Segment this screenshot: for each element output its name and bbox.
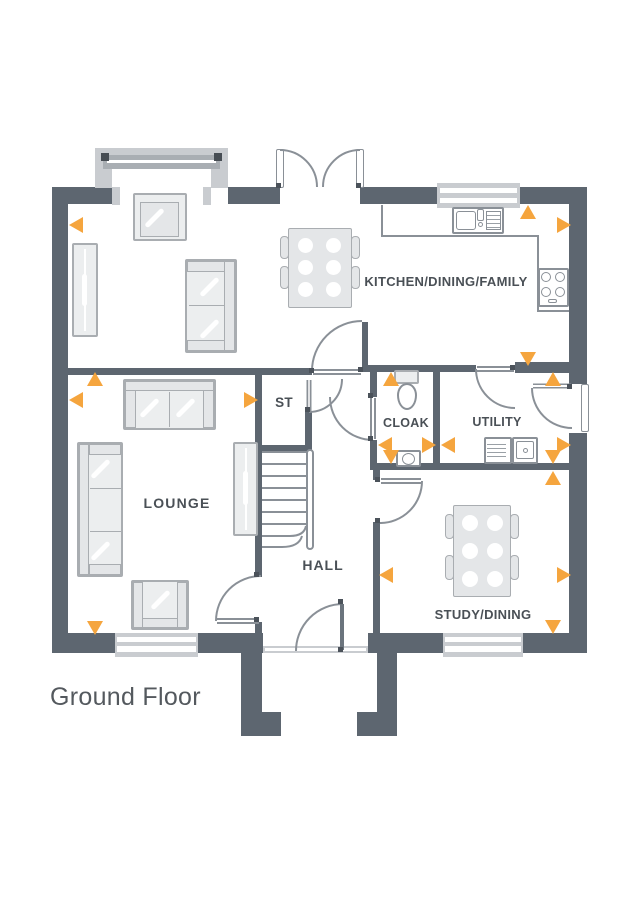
room-label-utility: UTILITY <box>467 415 527 429</box>
back-door-arc <box>532 388 572 428</box>
french-door-arc-right <box>323 150 360 187</box>
dimension-marker-down <box>545 450 561 464</box>
room-label-cloak: CLOAK <box>376 416 436 430</box>
lounge-door-arc <box>216 576 261 621</box>
kitchen-counter <box>382 205 569 311</box>
stair-treads <box>262 452 307 524</box>
linework-layer <box>0 0 636 900</box>
dimension-marker-right <box>422 437 436 453</box>
dimension-marker-down <box>545 620 561 634</box>
room-label-kitchen: KITCHEN/DINING/FAMILY <box>326 274 566 289</box>
dimension-marker-left <box>69 217 83 233</box>
cloak-door-arc <box>330 397 373 440</box>
room-label-hall: HALL <box>283 557 363 573</box>
study-door-arc <box>380 481 422 523</box>
dimension-marker-left <box>441 437 455 453</box>
room-label-study: STUDY/DINING <box>403 607 563 622</box>
dimension-marker-up <box>545 471 561 485</box>
front-door-arc <box>296 604 343 651</box>
dimension-marker-down <box>87 621 103 635</box>
dimension-marker-up <box>87 372 103 386</box>
dimension-marker-down <box>520 352 536 366</box>
store-door-arc <box>309 379 342 412</box>
stair-bullnose <box>262 526 306 536</box>
floor-title: Ground Floor <box>50 683 201 712</box>
dimension-marker-up <box>520 205 536 219</box>
stair-bullnose <box>262 536 302 547</box>
dimension-marker-left <box>379 567 393 583</box>
stair-handrail <box>307 450 313 549</box>
french-door-arc-left <box>280 150 317 187</box>
dimension-marker-up <box>545 372 561 386</box>
ground-floor-plan: KITCHEN/DINING/FAMILY LOUNGE ST CLOAK UT… <box>0 0 636 900</box>
room-label-lounge: LOUNGE <box>117 495 237 511</box>
kitchen-door-arc <box>312 321 362 371</box>
dimension-marker-up <box>383 372 399 386</box>
dimension-marker-down <box>383 450 399 464</box>
dimension-marker-right <box>244 392 258 408</box>
dimension-marker-left <box>69 392 83 408</box>
utility-door-arc <box>476 369 515 408</box>
room-label-store: ST <box>262 395 306 410</box>
dimension-marker-right <box>557 217 571 233</box>
dimension-marker-right <box>557 567 571 583</box>
